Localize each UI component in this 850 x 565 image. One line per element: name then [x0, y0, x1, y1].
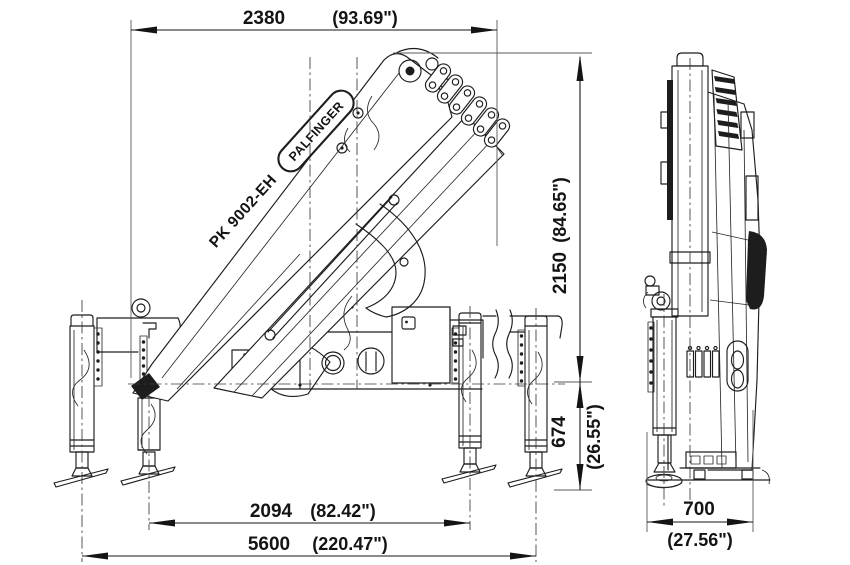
- front-column: [661, 53, 710, 316]
- dim-outrigger-span-inner-value: 2094: [250, 501, 293, 522]
- dim-outrigger-span-outer-inches: (220.47"): [312, 534, 388, 554]
- dim-overall-height-value: 2150: [550, 252, 571, 294]
- dim-top-width-inches: (93.69"): [332, 8, 398, 28]
- dim-outrigger-span-outer-value: 5600: [248, 534, 290, 555]
- front-view: [643, 53, 770, 508]
- front-folded-boom: [708, 70, 767, 470]
- dim-outrigger-span-inner: 2094 (82.42"): [149, 501, 470, 527]
- dim-overall-height-inches: (84.65"): [550, 177, 570, 243]
- crane-dimension-diagram: PALFINGER PK 9002-EH: [0, 0, 850, 565]
- dim-outrigger-span-inner-inches: (82.42"): [310, 501, 376, 521]
- dim-frame-to-ground-inches: (26.55"): [584, 404, 604, 470]
- dim-outrigger-span-outer: 5600 (220.47"): [82, 534, 536, 560]
- outrigger-leg-front-left: [54, 315, 108, 487]
- dim-frame-to-ground-value: 674: [549, 416, 570, 448]
- dim-top-width-value: 2380: [243, 8, 285, 29]
- dim-front-width-inches: (27.56"): [667, 530, 733, 550]
- diagram-canvas: PALFINGER PK 9002-EH: [0, 0, 850, 565]
- boom-pad-dark: [746, 231, 767, 309]
- outrigger-leg-rear-right: [508, 316, 562, 487]
- dim-front-width-value: 700: [683, 499, 715, 520]
